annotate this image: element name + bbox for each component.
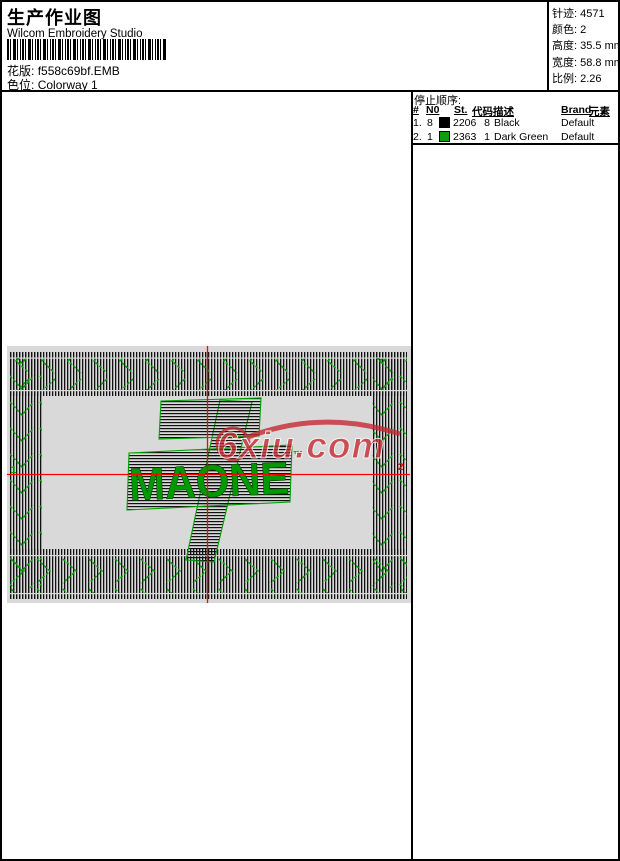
stop-seq: 1. — [413, 117, 422, 129]
needle-number: 1 — [427, 131, 433, 143]
needle-number: 8 — [427, 117, 433, 129]
stitch-count: 2363 — [453, 131, 476, 143]
production-worksheet-page: 生产作业图 Wilcom Embroidery Studio 花版: f558c… — [0, 0, 620, 861]
stop-seq: 2. — [413, 131, 422, 143]
stat-width: 宽度: 58.8 mm — [552, 55, 618, 71]
watermark-text: 6xiu.com — [217, 425, 385, 466]
col-header-needle: N0 — [426, 104, 439, 116]
header-divider — [2, 90, 620, 92]
color-swatch — [439, 131, 450, 142]
col-header-num: # — [413, 104, 419, 116]
stat-scale: 比例: 2.26 — [552, 71, 618, 87]
design-preview: MAONE ™ 6xiu.com 1 2 — [7, 346, 411, 603]
stat-height: 高度: 35.5 mm — [552, 38, 618, 54]
page-title: 生产作业图 — [7, 4, 102, 30]
thread-brand: Default — [561, 131, 594, 143]
stat-colors: 颜色: 2 — [552, 22, 618, 38]
col-header-brand: Brand — [561, 104, 591, 116]
color-swatch — [439, 117, 450, 128]
thread-desc: Black — [494, 117, 520, 129]
thread-brand: Default — [561, 117, 594, 129]
thread-code: 8 — [476, 117, 490, 129]
right-column-divider — [411, 91, 413, 859]
thread-code: 1 — [476, 131, 490, 143]
stats-box-divider — [547, 2, 549, 91]
end-marker: 2 — [398, 462, 404, 473]
thread-desc: Dark Green — [494, 131, 548, 143]
barcode — [7, 39, 167, 60]
watermark: 6xiu.com — [217, 422, 400, 466]
stat-stitches: 针迹: 4571 — [552, 6, 618, 22]
design-stats-box: 针迹: 4571 颜色: 2 高度: 35.5 mm 宽度: 58.8 mm 比… — [552, 6, 618, 87]
col-header-st: St. — [454, 104, 467, 116]
table-bottom-rule — [412, 143, 620, 145]
stitch-count: 2206 — [453, 117, 476, 129]
